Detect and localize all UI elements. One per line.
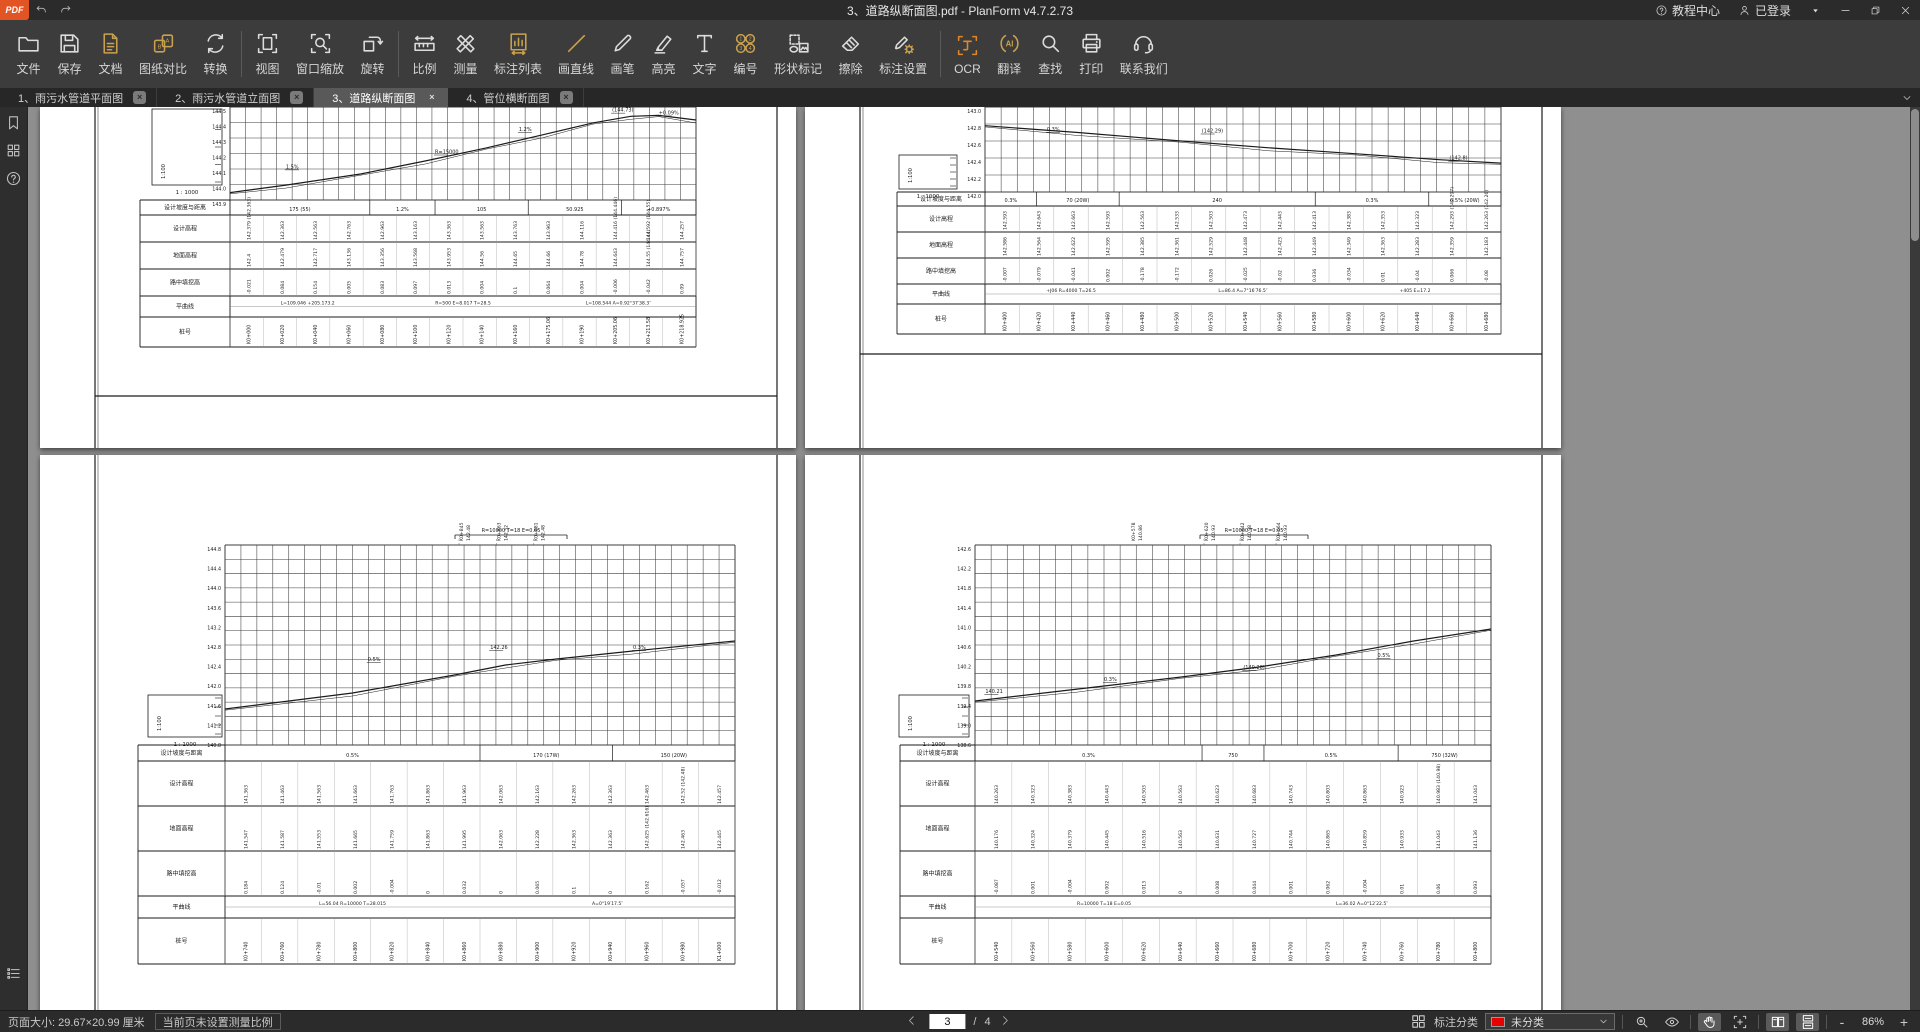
ocr-button[interactable]: OCR — [946, 22, 989, 86]
svg-text:142.595: 142.595 — [1106, 237, 1112, 256]
svg-text:141.363: 141.363 — [244, 785, 250, 804]
svg-text:142.361: 142.361 — [1174, 237, 1180, 256]
find-button[interactable]: 查找 — [1030, 22, 1071, 86]
svg-text:0.004: 0.004 — [480, 281, 486, 294]
drawing-compare-label: 图纸对比 — [139, 60, 187, 77]
thumbnail-grid-panel-button[interactable] — [5, 142, 22, 159]
svg-text:105: 105 — [477, 207, 487, 213]
line-icon — [564, 31, 589, 56]
svg-text:K0+540: K0+540 — [1243, 312, 1249, 331]
bookmark-panel-button[interactable] — [5, 114, 22, 131]
svg-text:144.4: 144.4 — [207, 567, 221, 573]
svg-text:140.176: 140.176 — [994, 830, 1000, 849]
svg-text:50.925: 50.925 — [566, 207, 584, 213]
tab-close-icon[interactable]: × — [133, 91, 146, 104]
svg-text:143.356: 143.356 — [380, 248, 386, 267]
annotation-settings-button[interactable]: 标注设置 — [871, 22, 935, 86]
annotation-class-dropdown[interactable]: 未分类 — [1485, 1013, 1615, 1030]
minimize-button[interactable] — [1830, 0, 1860, 20]
svg-text:142.48: 142.48 — [541, 525, 547, 541]
svg-text:142.625 (142.616): 142.625 (142.616) — [644, 806, 650, 849]
tab-2[interactable]: 2、雨污水管道立面图× — [157, 88, 314, 107]
svg-text:140.923: 140.923 — [1399, 785, 1405, 804]
svg-text:142.448: 142.448 — [1243, 237, 1249, 256]
svg-text:K0+205.06: K0+205.06 — [613, 317, 619, 344]
svg-text:0: 0 — [608, 891, 614, 894]
help-circle-icon — [1655, 4, 1668, 17]
hand-tool-button[interactable] — [1698, 1013, 1721, 1031]
convert-button[interactable]: 转换 — [195, 22, 236, 86]
svg-text:138.6: 138.6 — [957, 743, 971, 749]
tab-overflow-button[interactable] — [1894, 88, 1920, 107]
svg-text:-0.004: -0.004 — [389, 879, 395, 894]
annotation-list-icon — [506, 31, 531, 56]
svg-text:142.52 (142.48): 142.52 (142.48) — [681, 767, 687, 804]
two-page-icon — [1770, 1014, 1786, 1030]
chevron-down-icon — [1598, 1016, 1609, 1027]
page-size-label: 页面大小: 29.67×20.99 厘米 — [8, 1014, 145, 1030]
svg-text:144.643: 144.643 — [613, 248, 619, 267]
svg-text:150 (20W): 150 (20W) — [661, 753, 687, 759]
ocr-label: OCR — [954, 62, 981, 76]
tab-3[interactable]: 3、道路纵断面图× — [314, 88, 448, 107]
svg-text:R=10000 T=18 E=0.05: R=10000 T=18 E=0.05 — [482, 528, 541, 534]
svg-text:142.2: 142.2 — [957, 567, 971, 573]
main-toolbar: 文件保存文档AB图纸对比转换视图窗口缩放旋转比例测量标注列表画直线画笔高亮文字1… — [0, 20, 1920, 88]
svg-text:-0.042: -0.042 — [646, 279, 652, 294]
printer-icon — [1079, 31, 1104, 56]
svg-text:K0+660: K0+660 — [1215, 942, 1221, 961]
status-bar: 页面大小: 29.67×20.99 厘米 当前页未设置测量比例 / 4 标注分类… — [0, 1010, 1920, 1032]
rotate-label: 旋转 — [361, 60, 385, 77]
toc-list-button[interactable] — [5, 965, 22, 982]
undo-button[interactable] — [29, 0, 53, 20]
svg-text:-0.012: -0.012 — [717, 879, 723, 894]
headset-icon — [1131, 31, 1156, 56]
document-canvas[interactable]: 1:1001 : 1000142.6142.2141.8141.4141.014… — [28, 107, 1920, 1010]
svg-text:140.445: 140.445 — [1104, 830, 1110, 849]
convert-arrows-icon — [203, 31, 228, 56]
svg-text:140.324: 140.324 — [1031, 830, 1037, 849]
view-button[interactable]: 视图 — [247, 22, 288, 86]
svg-text:142.593: 142.593 — [1106, 211, 1112, 230]
svg-text:1.2%: 1.2% — [396, 207, 409, 213]
svg-text:0.001: 0.001 — [1031, 881, 1037, 894]
print-button[interactable]: 打印 — [1071, 22, 1112, 86]
contact-label: 联系我们 — [1120, 60, 1168, 77]
svg-text:142.473: 142.473 — [1243, 211, 1249, 230]
search-icon — [1038, 31, 1063, 56]
svg-text:750: 750 — [1228, 753, 1238, 759]
svg-text:0.036: 0.036 — [1312, 269, 1318, 282]
svg-text:144.0: 144.0 — [207, 586, 221, 592]
svg-text:140.631: 140.631 — [1215, 830, 1221, 849]
login-status-button[interactable]: 已登录 — [1729, 0, 1800, 20]
pdf-page-1: 1:1001 : 1000144.5144.4144.3144.2144.114… — [40, 107, 796, 448]
svg-text:K0+780: K0+780 — [1436, 942, 1442, 961]
svg-text:141.547: 141.547 — [244, 830, 250, 849]
svg-text:142.503: 142.503 — [1209, 211, 1215, 230]
svg-text:K0+664: K0+664 — [1276, 522, 1282, 541]
svg-text:141.136: 141.136 — [1473, 830, 1479, 849]
svg-text:-0.021: -0.021 — [247, 279, 253, 294]
svg-text:K0+960: K0+960 — [644, 942, 650, 961]
svg-text:141.8: 141.8 — [957, 586, 971, 592]
svg-text:144.1: 144.1 — [212, 171, 226, 177]
svg-text:K0+820: K0+820 — [389, 942, 395, 961]
svg-text:142.283: 142.283 — [1415, 237, 1421, 256]
svg-text:L=86.4 A=7°16′76.5″: L=86.4 A=7°16′76.5″ — [1218, 288, 1267, 294]
svg-text:设计高程: 设计高程 — [925, 780, 949, 788]
svg-text:地面高程: 地面高程 — [169, 825, 193, 833]
pen-gear-icon — [891, 31, 916, 56]
continuous-scroll-button[interactable] — [1796, 1013, 1819, 1031]
svg-text:142.363: 142.363 — [280, 221, 286, 240]
preview-button[interactable] — [1660, 1013, 1683, 1031]
svg-text:140.21: 140.21 — [985, 689, 1003, 695]
numbering-label: 编号 — [734, 60, 758, 77]
svg-text:K0+460: K0+460 — [1106, 312, 1112, 331]
svg-text:0.005: 0.005 — [346, 281, 352, 294]
svg-text:K0+600: K0+600 — [1104, 942, 1110, 961]
svg-text:141.6: 141.6 — [207, 704, 221, 710]
svg-text:142.263: 142.263 — [571, 785, 577, 804]
svg-text:(144.73): (144.73) — [612, 108, 633, 114]
svg-text:地面高程: 地面高程 — [173, 252, 197, 260]
svg-text:0.5%: 0.5% — [1377, 653, 1390, 659]
svg-text:设计高程: 设计高程 — [169, 780, 193, 788]
save-button[interactable]: 保存 — [49, 22, 90, 86]
tab-4[interactable]: 4、管位横断面图× — [448, 88, 583, 107]
svg-text:0.1: 0.1 — [571, 887, 577, 894]
svg-text:0.5%: 0.5% — [368, 657, 381, 663]
zoom-area-button[interactable] — [1630, 1013, 1653, 1031]
svg-text:141.043: 141.043 — [1473, 785, 1479, 804]
svg-text:0.097: 0.097 — [413, 281, 419, 294]
vertical-scrollbar[interactable] — [1910, 107, 1920, 1010]
erase-button[interactable]: 擦除 — [830, 22, 871, 86]
total-pages-label: 4 — [984, 1016, 990, 1028]
highlight-button[interactable]: 高亮 — [643, 22, 684, 86]
highlighter-icon — [651, 31, 676, 56]
svg-text:140.859: 140.859 — [1362, 830, 1368, 849]
svg-text:142.586: 142.586 — [1002, 237, 1008, 256]
svg-text:K0+881: K0+881 — [534, 522, 540, 541]
svg-text:142.529: 142.529 — [1209, 237, 1215, 256]
floppy-icon — [57, 31, 82, 56]
zoom-in-button[interactable]: + — [1896, 1014, 1912, 1030]
svg-text:140.379: 140.379 — [1068, 830, 1074, 849]
view-label: 视图 — [256, 60, 280, 77]
scale-button[interactable]: 比例 — [404, 22, 445, 86]
annotation-classify-button[interactable] — [1410, 1013, 1427, 1030]
svg-text:K0+120: K0+120 — [446, 325, 452, 344]
svg-text:142.593: 142.593 — [1002, 211, 1008, 230]
svg-text:141.0: 141.0 — [957, 625, 971, 631]
svg-text:70 (20W): 70 (20W) — [1066, 198, 1089, 204]
svg-text:0.184: 0.184 — [244, 881, 250, 894]
annotation-list-button[interactable]: 标注列表 — [486, 22, 550, 86]
svg-text:K0+420: K0+420 — [1037, 312, 1043, 331]
text-button[interactable]: 文字 — [684, 22, 725, 86]
document-button[interactable]: 文档 — [90, 22, 131, 86]
svg-text:0.06: 0.06 — [1436, 884, 1442, 894]
svg-text:L=56.04 R=10000 T=28.015: L=56.04 R=10000 T=28.015 — [319, 901, 386, 907]
svg-text:-0.08: -0.08 — [1484, 270, 1490, 282]
svg-text:K0+600: K0+600 — [1346, 312, 1352, 331]
svg-text:K0+920: K0+920 — [571, 942, 577, 961]
svg-text:桩号: 桩号 — [931, 937, 943, 945]
svg-text:140.6: 140.6 — [957, 645, 971, 651]
svg-text:144.3: 144.3 — [212, 140, 226, 146]
svg-text:K0+175.06: K0+175.06 — [546, 317, 552, 344]
svg-text:0.124: 0.124 — [280, 881, 286, 894]
restore-button[interactable] — [1860, 0, 1890, 20]
svg-text:140.743: 140.743 — [1289, 785, 1295, 804]
svg-text:142.643: 142.643 — [1037, 211, 1043, 230]
svg-text:K0+040: K0+040 — [313, 325, 319, 344]
toolbar-divider — [940, 31, 941, 77]
svg-text:K0+642: K0+642 — [1240, 522, 1246, 541]
svg-text:142.063: 142.063 — [499, 830, 505, 849]
measure-scale-notice[interactable]: 当前页未设置测量比例 — [155, 1013, 281, 1030]
svg-text:139.4: 139.4 — [957, 704, 971, 710]
zoom-out-button[interactable]: - — [1834, 1014, 1850, 1030]
svg-text:K0+863: K0+863 — [496, 522, 502, 541]
svg-text:K0+213.58: K0+213.58 — [646, 317, 652, 344]
svg-text:143.563: 143.563 — [480, 221, 486, 240]
svg-text:140.263: 140.263 — [994, 785, 1000, 804]
svg-text:142.463: 142.463 — [644, 785, 650, 804]
statusbar-divider — [1758, 1015, 1759, 1029]
svg-text:0.064: 0.064 — [546, 281, 552, 294]
svg-text:1 : 1000: 1 : 1000 — [176, 190, 199, 196]
tab-1[interactable]: 1、雨污水管道平面图× — [0, 88, 157, 107]
svg-text:-0.04: -0.04 — [1415, 270, 1421, 282]
svg-text:K0+845: K0+845 — [459, 522, 465, 541]
tab-close-icon[interactable]: × — [425, 91, 438, 104]
svg-text:0.002: 0.002 — [353, 881, 359, 894]
svg-text:144.5: 144.5 — [212, 109, 226, 115]
svg-text:144.65: 144.65 — [513, 251, 519, 267]
svg-text:K0+218.925: K0+218.925 — [679, 314, 685, 344]
svg-text:K0+760: K0+760 — [280, 942, 286, 961]
svg-text:-0.087: -0.087 — [994, 879, 1000, 894]
svg-text:K0+060: K0+060 — [346, 325, 352, 344]
shape-mark-button[interactable]: 形状标记 — [766, 22, 830, 86]
erase-label: 擦除 — [839, 60, 863, 77]
svg-text:141.763: 141.763 — [389, 785, 395, 804]
svg-text:K0+560: K0+560 — [1031, 942, 1037, 961]
window-zoom-button[interactable]: 窗口缩放 — [288, 22, 352, 86]
svg-text:140.8: 140.8 — [207, 743, 221, 749]
select-frame-button[interactable] — [1728, 1013, 1751, 1031]
svg-text:140.803: 140.803 — [1326, 785, 1332, 804]
svg-text:141.553: 141.553 — [316, 830, 322, 849]
svg-text:0.004: 0.004 — [579, 281, 585, 294]
svg-text:139.0: 139.0 — [957, 723, 971, 729]
rotate-button[interactable]: 旋转 — [352, 22, 393, 86]
svg-text:750 (32W): 750 (32W) — [1431, 753, 1457, 759]
redo-button[interactable] — [53, 0, 77, 20]
svg-text:142.6: 142.6 — [957, 547, 971, 553]
text-icon — [692, 31, 717, 56]
page-number-input[interactable] — [929, 1014, 965, 1029]
svg-text:142.48: 142.48 — [466, 525, 472, 541]
svg-text:A=0°19′17.5″: A=0°19′17.5″ — [592, 901, 623, 907]
tab-close-icon[interactable]: × — [560, 91, 573, 104]
tab-label: 4、管位横断面图 — [466, 90, 549, 106]
svg-text:143.953: 143.953 — [446, 248, 452, 267]
tutorial-center-button[interactable]: 教程中心 — [1646, 0, 1729, 20]
caret-down-icon — [1810, 5, 1821, 16]
svg-text:0.5%: 0.5% — [1325, 753, 1338, 759]
svg-text:0.01: 0.01 — [1399, 884, 1405, 894]
svg-text:K0+680: K0+680 — [1484, 312, 1490, 331]
svg-text:0.3%: 0.3% — [633, 645, 646, 651]
svg-text:设计坡度与距离: 设计坡度与距离 — [920, 195, 962, 203]
scrollbar-thumb[interactable] — [1911, 109, 1919, 241]
svg-text:地面高程: 地面高程 — [929, 241, 953, 249]
svg-text:0.062: 0.062 — [1326, 881, 1332, 894]
svg-text:0.3%: 0.3% — [1082, 753, 1095, 759]
next-page-button[interactable] — [999, 1014, 1015, 1030]
print-label: 打印 — [1079, 60, 1103, 77]
previous-page-button[interactable] — [905, 1014, 921, 1030]
svg-text:K0+900: K0+900 — [535, 942, 541, 961]
svg-text:140.86: 140.86 — [1138, 525, 1144, 541]
svg-text:142.4: 142.4 — [247, 254, 253, 267]
svg-text:桩号: 桩号 — [179, 328, 191, 336]
svg-text:地面高程: 地面高程 — [925, 825, 949, 833]
tab-close-icon[interactable]: × — [290, 91, 303, 104]
svg-text:142.8: 142.8 — [967, 126, 981, 132]
svg-text:(142.8): (142.8) — [1449, 156, 1467, 162]
find-label: 查找 — [1038, 60, 1062, 77]
svg-text:0.3%: 0.3% — [1047, 127, 1060, 133]
svg-text:142.4: 142.4 — [967, 160, 981, 166]
draw-line-button[interactable]: 画直线 — [550, 22, 602, 86]
restore-icon — [1870, 5, 1881, 16]
svg-text:142.663: 142.663 — [1071, 211, 1077, 230]
svg-text:3: 3 — [739, 46, 742, 52]
svg-text:-0.178: -0.178 — [1140, 267, 1146, 282]
file-button[interactable]: 文件 — [8, 22, 49, 86]
svg-text:K0+840: K0+840 — [426, 942, 432, 961]
document-tab-bar: 1、雨污水管道平面图×2、雨污水管道立面图×3、道路纵断面图×4、管位横断面图× — [0, 88, 1920, 107]
svg-text:K0+520: K0+520 — [1209, 312, 1215, 331]
toolbar-divider — [241, 31, 242, 77]
svg-text:143.568: 143.568 — [413, 248, 419, 267]
svg-text:K0+620: K0+620 — [1381, 312, 1387, 331]
document-label: 文档 — [98, 60, 122, 77]
pen-button[interactable]: 画笔 — [602, 22, 643, 86]
svg-text:K0+640: K0+640 — [1178, 942, 1184, 961]
svg-text:142.323: 142.323 — [1415, 211, 1421, 230]
translate-button[interactable]: AI翻译 — [989, 22, 1030, 86]
help-circle-panel-button[interactable] — [5, 170, 22, 187]
svg-text:140.865: 140.865 — [1326, 830, 1332, 849]
help-circle-icon — [5, 170, 22, 187]
toc-list-icon — [5, 965, 22, 982]
svg-text:路中填挖高: 路中填挖高 — [166, 870, 196, 878]
svg-text:141.563: 141.563 — [316, 785, 322, 804]
svg-text:K0+400: K0+400 — [1002, 312, 1008, 331]
svg-text:142.563: 142.563 — [313, 221, 319, 240]
svg-text:175 (55): 175 (55) — [289, 207, 310, 213]
svg-text:1:100: 1:100 — [908, 716, 914, 731]
compare-pages-icon: AB — [151, 31, 176, 56]
drawing-compare-button[interactable]: AB图纸对比 — [131, 22, 195, 86]
facing-pages-button[interactable] — [1766, 1013, 1789, 1031]
svg-text:K0+000: K0+000 — [247, 325, 253, 344]
svg-text:143.9: 143.9 — [212, 202, 226, 208]
svg-text:139.8: 139.8 — [957, 684, 971, 690]
svg-text:0.026: 0.026 — [1209, 269, 1215, 282]
numbering-button[interactable]: 1234编号 — [725, 22, 766, 86]
svg-text:140.443: 140.443 — [1104, 785, 1110, 804]
svg-text:-0.079: -0.079 — [1037, 267, 1043, 282]
svg-text:142.563: 142.563 — [1140, 211, 1146, 230]
svg-text:144.757: 144.757 — [679, 248, 685, 267]
rotate-icon — [360, 31, 385, 56]
svg-text:141.2: 141.2 — [207, 723, 221, 729]
annotation-class-value: 未分类 — [1511, 1014, 1544, 1030]
svg-text:(142.29): (142.29) — [1202, 129, 1223, 135]
svg-text:142.4: 142.4 — [207, 665, 221, 671]
svg-text:144.56: 144.56 — [480, 251, 486, 267]
svg-text:-0.172: -0.172 — [1174, 267, 1180, 282]
svg-text:桩号: 桩号 — [935, 315, 947, 323]
close-button[interactable] — [1890, 0, 1920, 20]
svg-text:142.0: 142.0 — [207, 684, 221, 690]
svg-text:设计坡度与距离: 设计坡度与距离 — [916, 749, 958, 757]
svg-text:K0+640: K0+640 — [1415, 312, 1421, 331]
svg-text:K0+140: K0+140 — [480, 325, 486, 344]
annotation-classify-label: 标注分类 — [1434, 1014, 1478, 1030]
window-title: 3、道路纵断面图.pdf - PlanForm v4.7.2.73 — [847, 2, 1073, 19]
svg-text:142.423: 142.423 — [1278, 237, 1284, 256]
svg-text:140.727: 140.727 — [1252, 830, 1258, 849]
user-menu-caret-button[interactable] — [1800, 0, 1830, 20]
svg-text:144.55 (144.44): 144.55 (144.44) — [646, 230, 652, 267]
svg-text:K0+620: K0+620 — [1141, 942, 1147, 961]
svg-text:141.665: 141.665 — [353, 830, 359, 849]
svg-text:240: 240 — [1212, 198, 1222, 204]
eraser-icon — [838, 31, 863, 56]
svg-text:K0+800: K0+800 — [353, 942, 359, 961]
svg-text:140.383: 140.383 — [1068, 785, 1074, 804]
translate-label: 翻译 — [997, 60, 1021, 77]
svg-text:0.002: 0.002 — [1104, 881, 1110, 894]
svg-text:142.349: 142.349 — [1346, 237, 1352, 256]
svg-text:140.2: 140.2 — [957, 665, 971, 671]
svg-text:142.2: 142.2 — [967, 177, 981, 183]
svg-text:0.002: 0.002 — [1106, 269, 1112, 282]
svg-text:140.933: 140.933 — [1399, 830, 1405, 849]
svg-text:142.383: 142.383 — [1346, 211, 1352, 230]
svg-text:142.385: 142.385 — [1140, 237, 1146, 256]
contact-button[interactable]: 联系我们 — [1112, 22, 1176, 86]
svg-text:K0+100: K0+100 — [413, 325, 419, 344]
svg-text:142.8: 142.8 — [207, 645, 221, 651]
svg-text:K0+720: K0+720 — [1326, 942, 1332, 961]
measure-button[interactable]: 测量 — [445, 22, 486, 86]
svg-text:K0+980: K0+980 — [681, 942, 687, 961]
svg-text:142.293 (142.297): 142.293 (142.297) — [1450, 187, 1456, 230]
svg-text:142.622: 142.622 — [1071, 237, 1077, 256]
chevron-left-icon — [905, 1014, 918, 1027]
